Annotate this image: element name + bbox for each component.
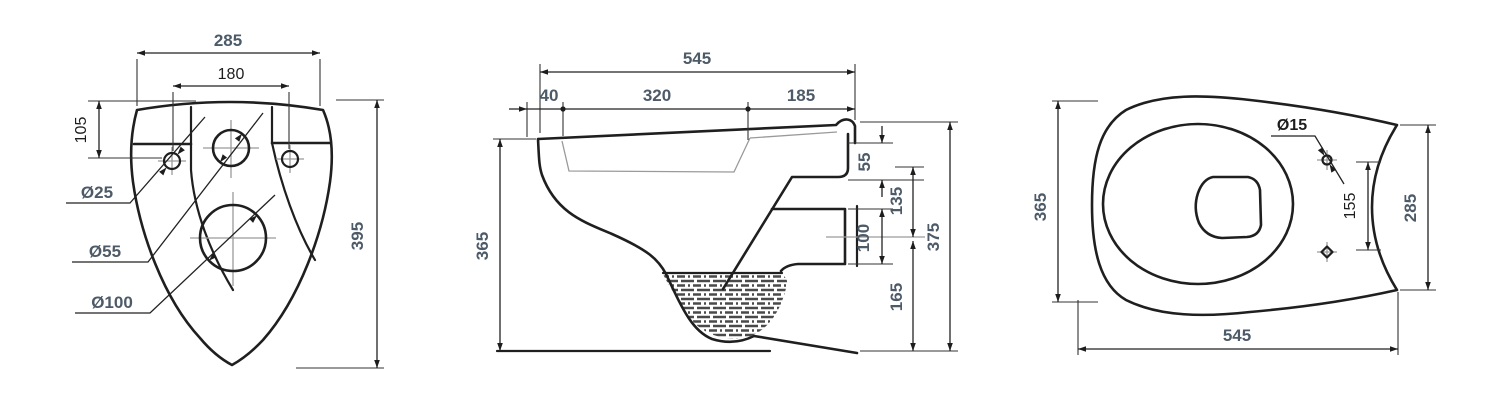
dim-label-side-100: 100 (854, 224, 873, 252)
dim-label-rear-395: 395 (348, 222, 367, 250)
dim-label-top-545: 545 (1223, 326, 1251, 345)
dim-label-side-135: 135 (887, 187, 906, 215)
dim-label-side-185: 185 (787, 86, 815, 105)
toilet-dimension-drawing: 285 180 105 395 (0, 0, 1500, 408)
technical-drawing-canvas: 285 180 105 395 (0, 0, 1500, 408)
callout-label-d25: Ø25 (81, 183, 113, 202)
dim-label-side-545: 545 (683, 49, 711, 68)
dim-label-side-365: 365 (473, 232, 492, 260)
dim-label-side-320: 320 (643, 86, 671, 105)
dim-label-side-165: 165 (887, 283, 906, 311)
dim-label-top-365: 365 (1031, 193, 1050, 221)
dim-label-rear-285: 285 (214, 31, 242, 50)
dim-label-side-40: 40 (540, 86, 559, 105)
dim-label-rear-105: 105 (73, 117, 90, 144)
dim-label-side-55: 55 (855, 153, 874, 172)
dim-label-side-375: 375 (924, 223, 943, 251)
callout-label-d100: Ø100 (91, 293, 133, 312)
callout-label-d15: Ø15 (1277, 117, 1307, 134)
dim-label-top-285: 285 (1401, 194, 1420, 222)
callout-label-d55: Ø55 (89, 242, 121, 261)
dim-label-top-155: 155 (1342, 193, 1359, 220)
background (0, 0, 1500, 408)
dim-label-rear-180: 180 (218, 66, 245, 83)
